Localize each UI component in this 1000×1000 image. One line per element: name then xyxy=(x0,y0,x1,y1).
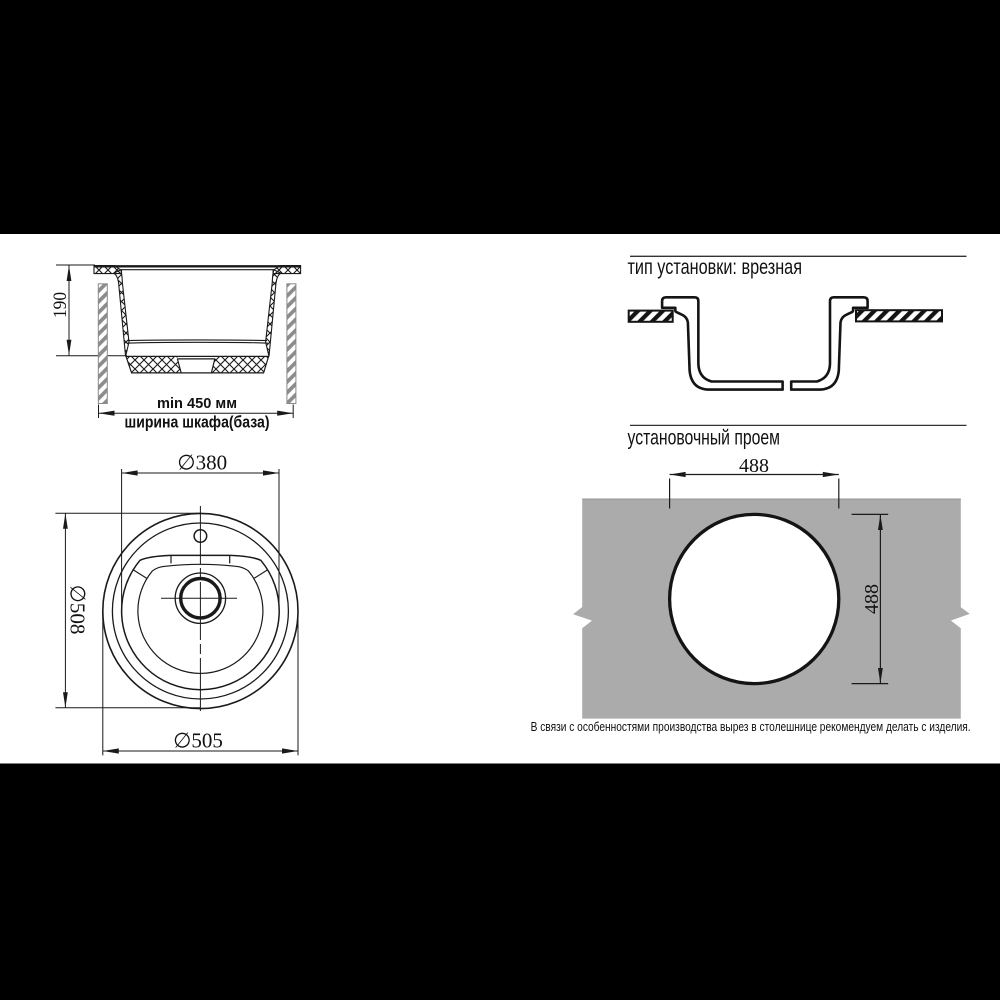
svg-text:488: 488 xyxy=(861,584,883,614)
svg-text:190: 190 xyxy=(50,292,71,318)
svg-text:∅380: ∅380 xyxy=(177,450,227,474)
svg-text:тип установки: врезная: тип установки: врезная xyxy=(628,256,803,279)
svg-text:ширина шкафа(база): ширина шкафа(база) xyxy=(125,412,270,431)
svg-text:∅508: ∅508 xyxy=(66,585,90,635)
svg-text:установочный проем: установочный проем xyxy=(628,427,781,450)
svg-text:В связи с особенностями произв: В связи с особенностями производства выр… xyxy=(531,719,971,734)
svg-text:∅505: ∅505 xyxy=(173,728,223,752)
svg-text:488: 488 xyxy=(739,455,769,477)
svg-text:min 450 мм: min 450 мм xyxy=(157,395,237,412)
